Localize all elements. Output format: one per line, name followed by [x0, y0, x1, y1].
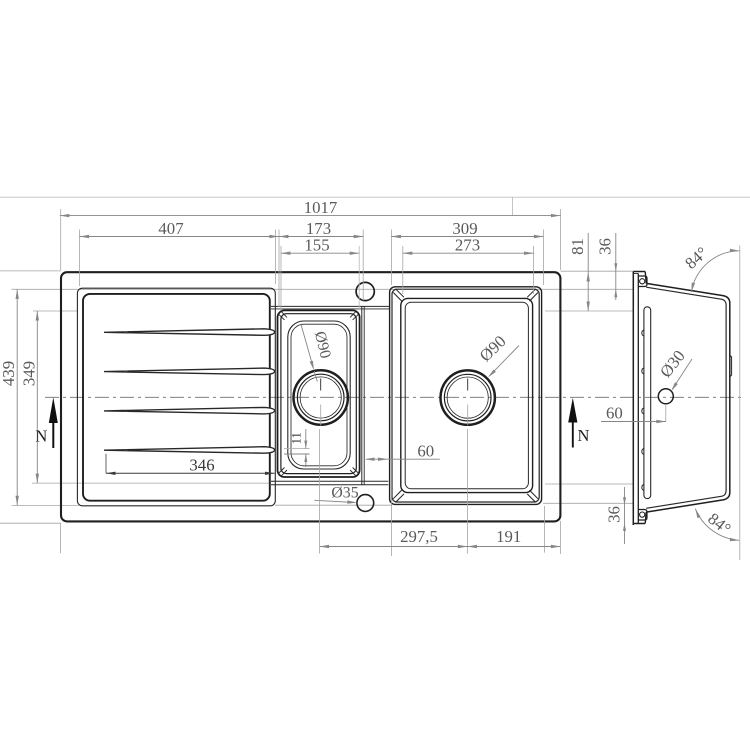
svg-text:155: 155	[304, 236, 329, 255]
svg-text:60: 60	[417, 442, 434, 461]
svg-text:60: 60	[606, 404, 623, 423]
svg-text:81: 81	[568, 238, 587, 255]
svg-text:N: N	[578, 426, 590, 445]
svg-text:N: N	[35, 426, 47, 445]
svg-text:11: 11	[289, 432, 303, 444]
svg-text:349: 349	[19, 361, 38, 386]
svg-text:Ø35: Ø35	[331, 484, 358, 501]
svg-text:1017: 1017	[304, 198, 338, 217]
svg-text:273: 273	[455, 236, 480, 255]
svg-text:36: 36	[596, 238, 615, 255]
svg-text:297,5: 297,5	[400, 527, 438, 546]
svg-text:36: 36	[604, 506, 623, 523]
svg-text:439: 439	[0, 361, 18, 386]
svg-text:407: 407	[158, 219, 183, 238]
svg-text:346: 346	[189, 455, 214, 474]
svg-text:191: 191	[496, 527, 521, 546]
